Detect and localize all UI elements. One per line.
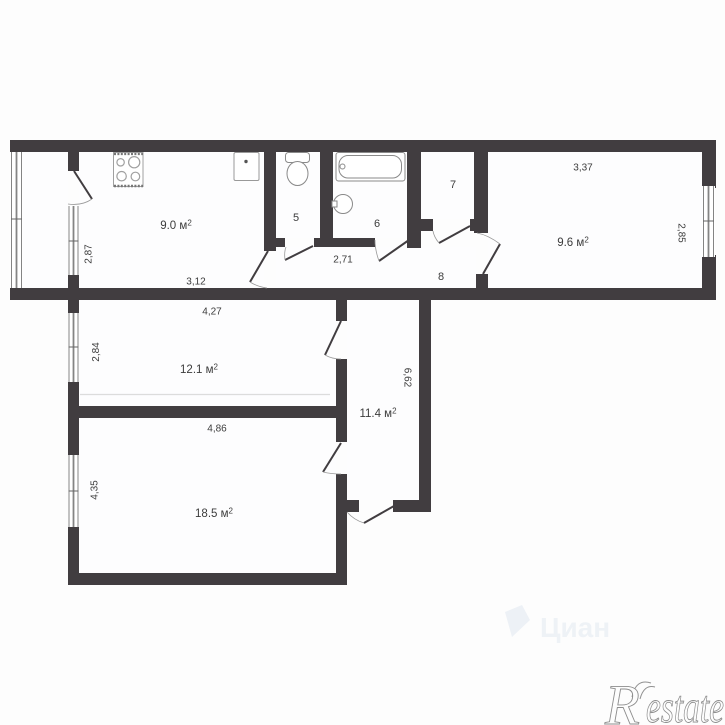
svg-text:6: 6 (374, 218, 380, 230)
svg-text:3,37: 3,37 (573, 163, 593, 174)
svg-text:2,71: 2,71 (333, 255, 353, 266)
svg-text:12.1 м2: 12.1 м2 (180, 363, 218, 377)
svg-text:2,85: 2,85 (676, 223, 687, 243)
svg-text:Циан: Циан (540, 612, 610, 643)
svg-text:7: 7 (450, 179, 456, 191)
svg-text:4,86: 4,86 (207, 424, 227, 435)
svg-text:4,35: 4,35 (90, 480, 101, 500)
svg-text:estate: estate (646, 682, 724, 725)
svg-text:6,62: 6,62 (402, 368, 413, 388)
svg-text:2,87: 2,87 (84, 244, 95, 264)
svg-text:4,27: 4,27 (202, 307, 222, 318)
svg-text:2,84: 2,84 (91, 342, 102, 362)
svg-text:5: 5 (293, 212, 299, 224)
svg-text:11.4 м2: 11.4 м2 (359, 407, 397, 421)
svg-text:R: R (604, 674, 640, 725)
svg-text:18.5 м2: 18.5 м2 (195, 507, 233, 521)
svg-text:8: 8 (438, 271, 444, 283)
svg-text:3,12: 3,12 (186, 277, 206, 288)
